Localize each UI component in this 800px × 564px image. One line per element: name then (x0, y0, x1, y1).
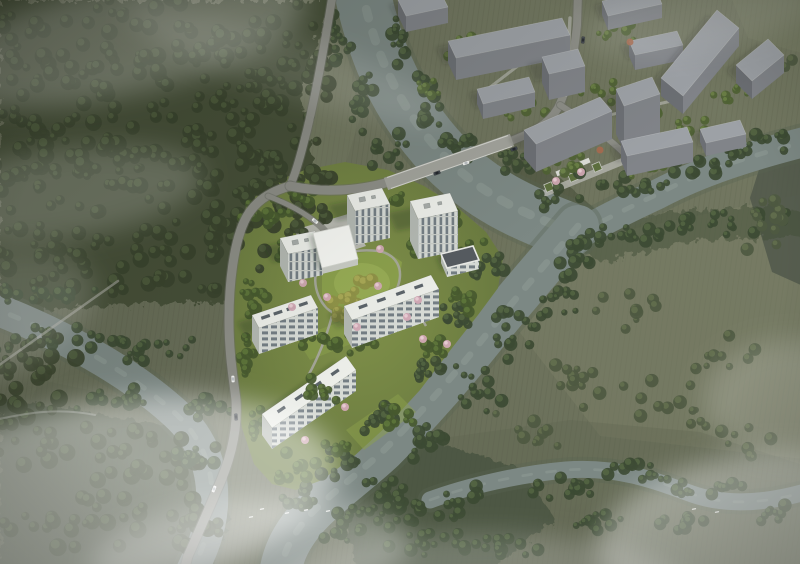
vignette (0, 0, 800, 564)
masterplan-rendering (0, 0, 800, 564)
rendering-canvas (0, 0, 800, 564)
